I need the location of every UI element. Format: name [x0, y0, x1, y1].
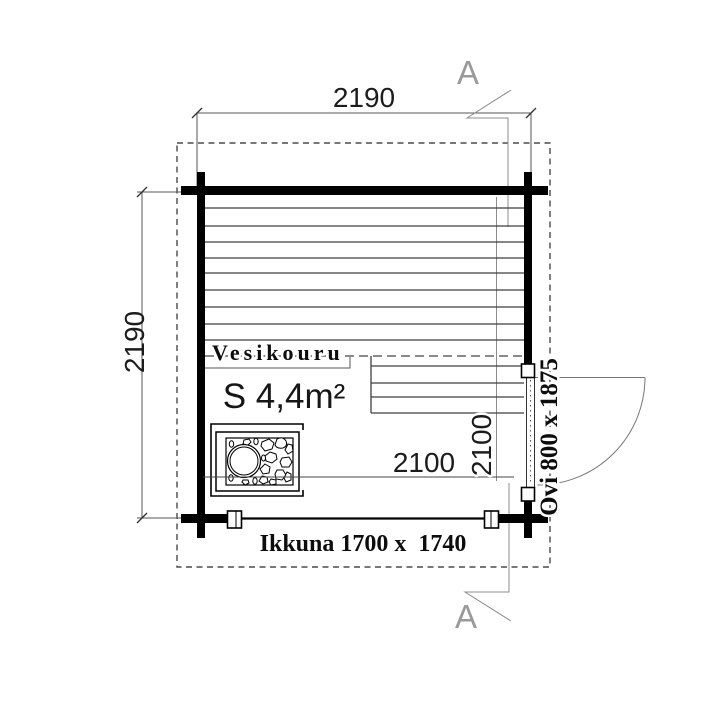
section-letter-bottom: A [455, 598, 477, 635]
window-jamb-left [228, 511, 242, 528]
stove [211, 424, 303, 496]
top-width-dimension-label: 2190 [333, 82, 395, 113]
interior-width-label: 2100 [393, 447, 455, 478]
room-labels: Vesikouru S 4,4m² [212, 340, 345, 416]
room-area-label: S 4,4m² [223, 377, 346, 416]
window: Ikkuna 1700 x 1740 [228, 511, 499, 557]
dimension-top: 2190 [192, 82, 536, 186]
stove-bolt [229, 475, 233, 481]
stone [280, 457, 292, 467]
door: Ovi 800 x 1875 [522, 358, 646, 516]
ceiling-boards [205, 208, 524, 340]
stone [275, 438, 287, 448]
left-depth-dimension-label: 2190 [119, 311, 150, 373]
door-size-label: Ovi 800 x 1875 [536, 358, 563, 516]
bench-steps [371, 356, 524, 413]
wall-top [181, 186, 548, 195]
stove-bolt [229, 441, 233, 447]
door-jamb-top [522, 364, 535, 378]
interior-depth-label: 2100 [466, 414, 497, 476]
wall-right-upper [524, 172, 532, 367]
wall-bottom-left [181, 514, 228, 523]
stove-bolt [253, 478, 257, 484]
stove-bolt [262, 455, 266, 461]
heater-drum-outer [228, 445, 261, 478]
floor-plan-page: 2190 2190 A A [0, 0, 720, 720]
dimension-left: 2190 [119, 187, 181, 523]
stone [269, 479, 276, 485]
window-size-label: Ikkuna 1700 x 1740 [260, 531, 467, 557]
stove-bolt [254, 438, 258, 444]
floor-plan-canvas: 2190 2190 A A [0, 0, 720, 720]
door-jamb-bottom [522, 488, 535, 502]
wall-left [197, 172, 205, 538]
section-letter-top: A [457, 54, 479, 91]
section-callout-top [467, 90, 511, 227]
gutter-label: Vesikouru [212, 340, 344, 365]
